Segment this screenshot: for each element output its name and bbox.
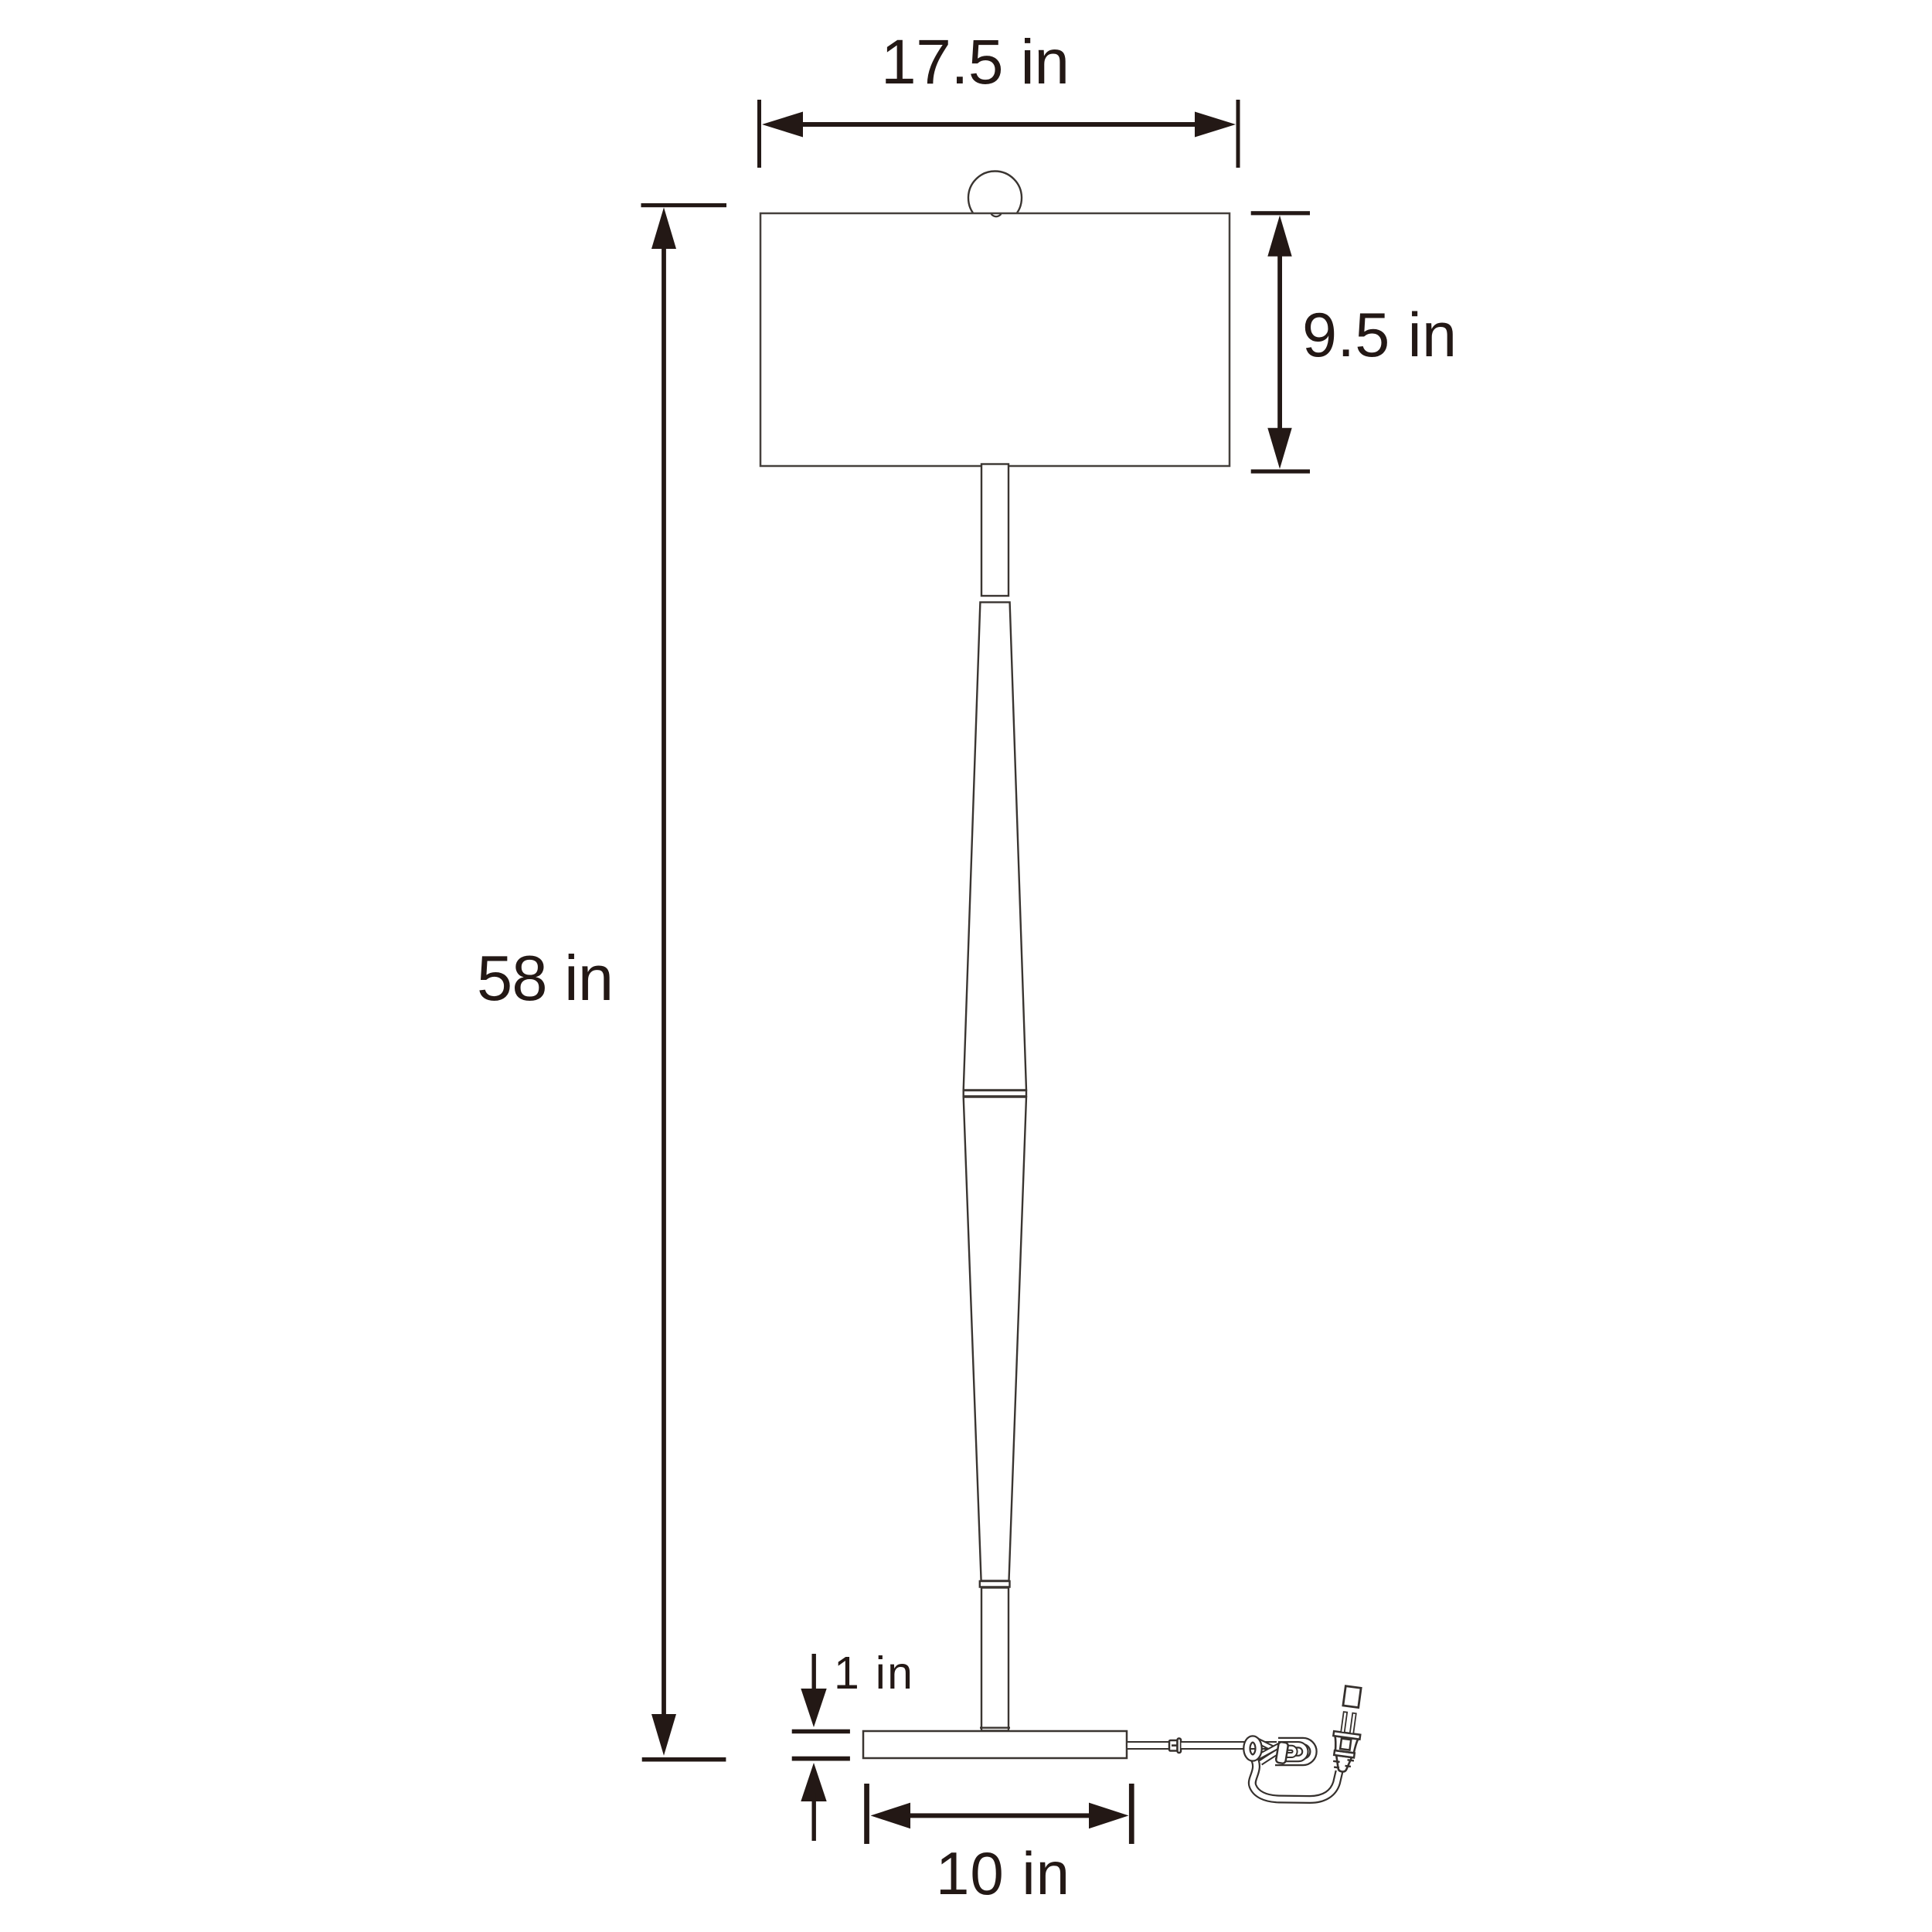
svg-text:17.5 in: 17.5 in	[881, 27, 1070, 97]
svg-text:1 in: 1 in	[834, 1648, 913, 1699]
svg-text:10 in: 10 in	[936, 1839, 1070, 1907]
svg-text:9.5 in: 9.5 in	[1302, 301, 1457, 370]
svg-text:58 in: 58 in	[477, 942, 614, 1014]
